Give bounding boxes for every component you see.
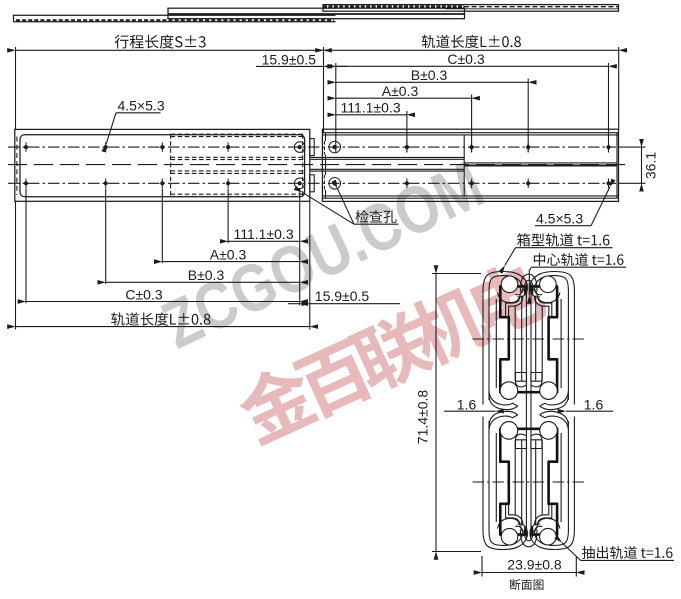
svg-text:36.1: 36.1 (643, 152, 659, 179)
svg-text:111.1±0.3: 111.1±0.3 (234, 226, 294, 242)
svg-text:C±0.3: C±0.3 (447, 51, 484, 67)
svg-text:111.1±0.3: 111.1±0.3 (341, 100, 401, 116)
svg-text:1.6: 1.6 (457, 396, 477, 412)
svg-text:15.9±0.5: 15.9±0.5 (262, 51, 317, 67)
svg-text:23.9±0.8: 23.9±0.8 (507, 557, 562, 573)
svg-text:1.6: 1.6 (584, 396, 604, 412)
svg-text:B±0.3: B±0.3 (411, 67, 448, 83)
svg-text:4.5×5.3: 4.5×5.3 (118, 97, 165, 113)
svg-text:71.4±0.8: 71.4±0.8 (415, 390, 431, 445)
svg-text:A±0.3: A±0.3 (382, 83, 419, 99)
svg-text:B±0.3: B±0.3 (188, 267, 225, 283)
svg-text:A±0.3: A±0.3 (210, 246, 247, 262)
svg-text:4.5×5.3: 4.5×5.3 (536, 210, 583, 226)
svg-text:C±0.3: C±0.3 (125, 286, 162, 302)
svg-text:15.9±0.5: 15.9±0.5 (315, 288, 370, 304)
